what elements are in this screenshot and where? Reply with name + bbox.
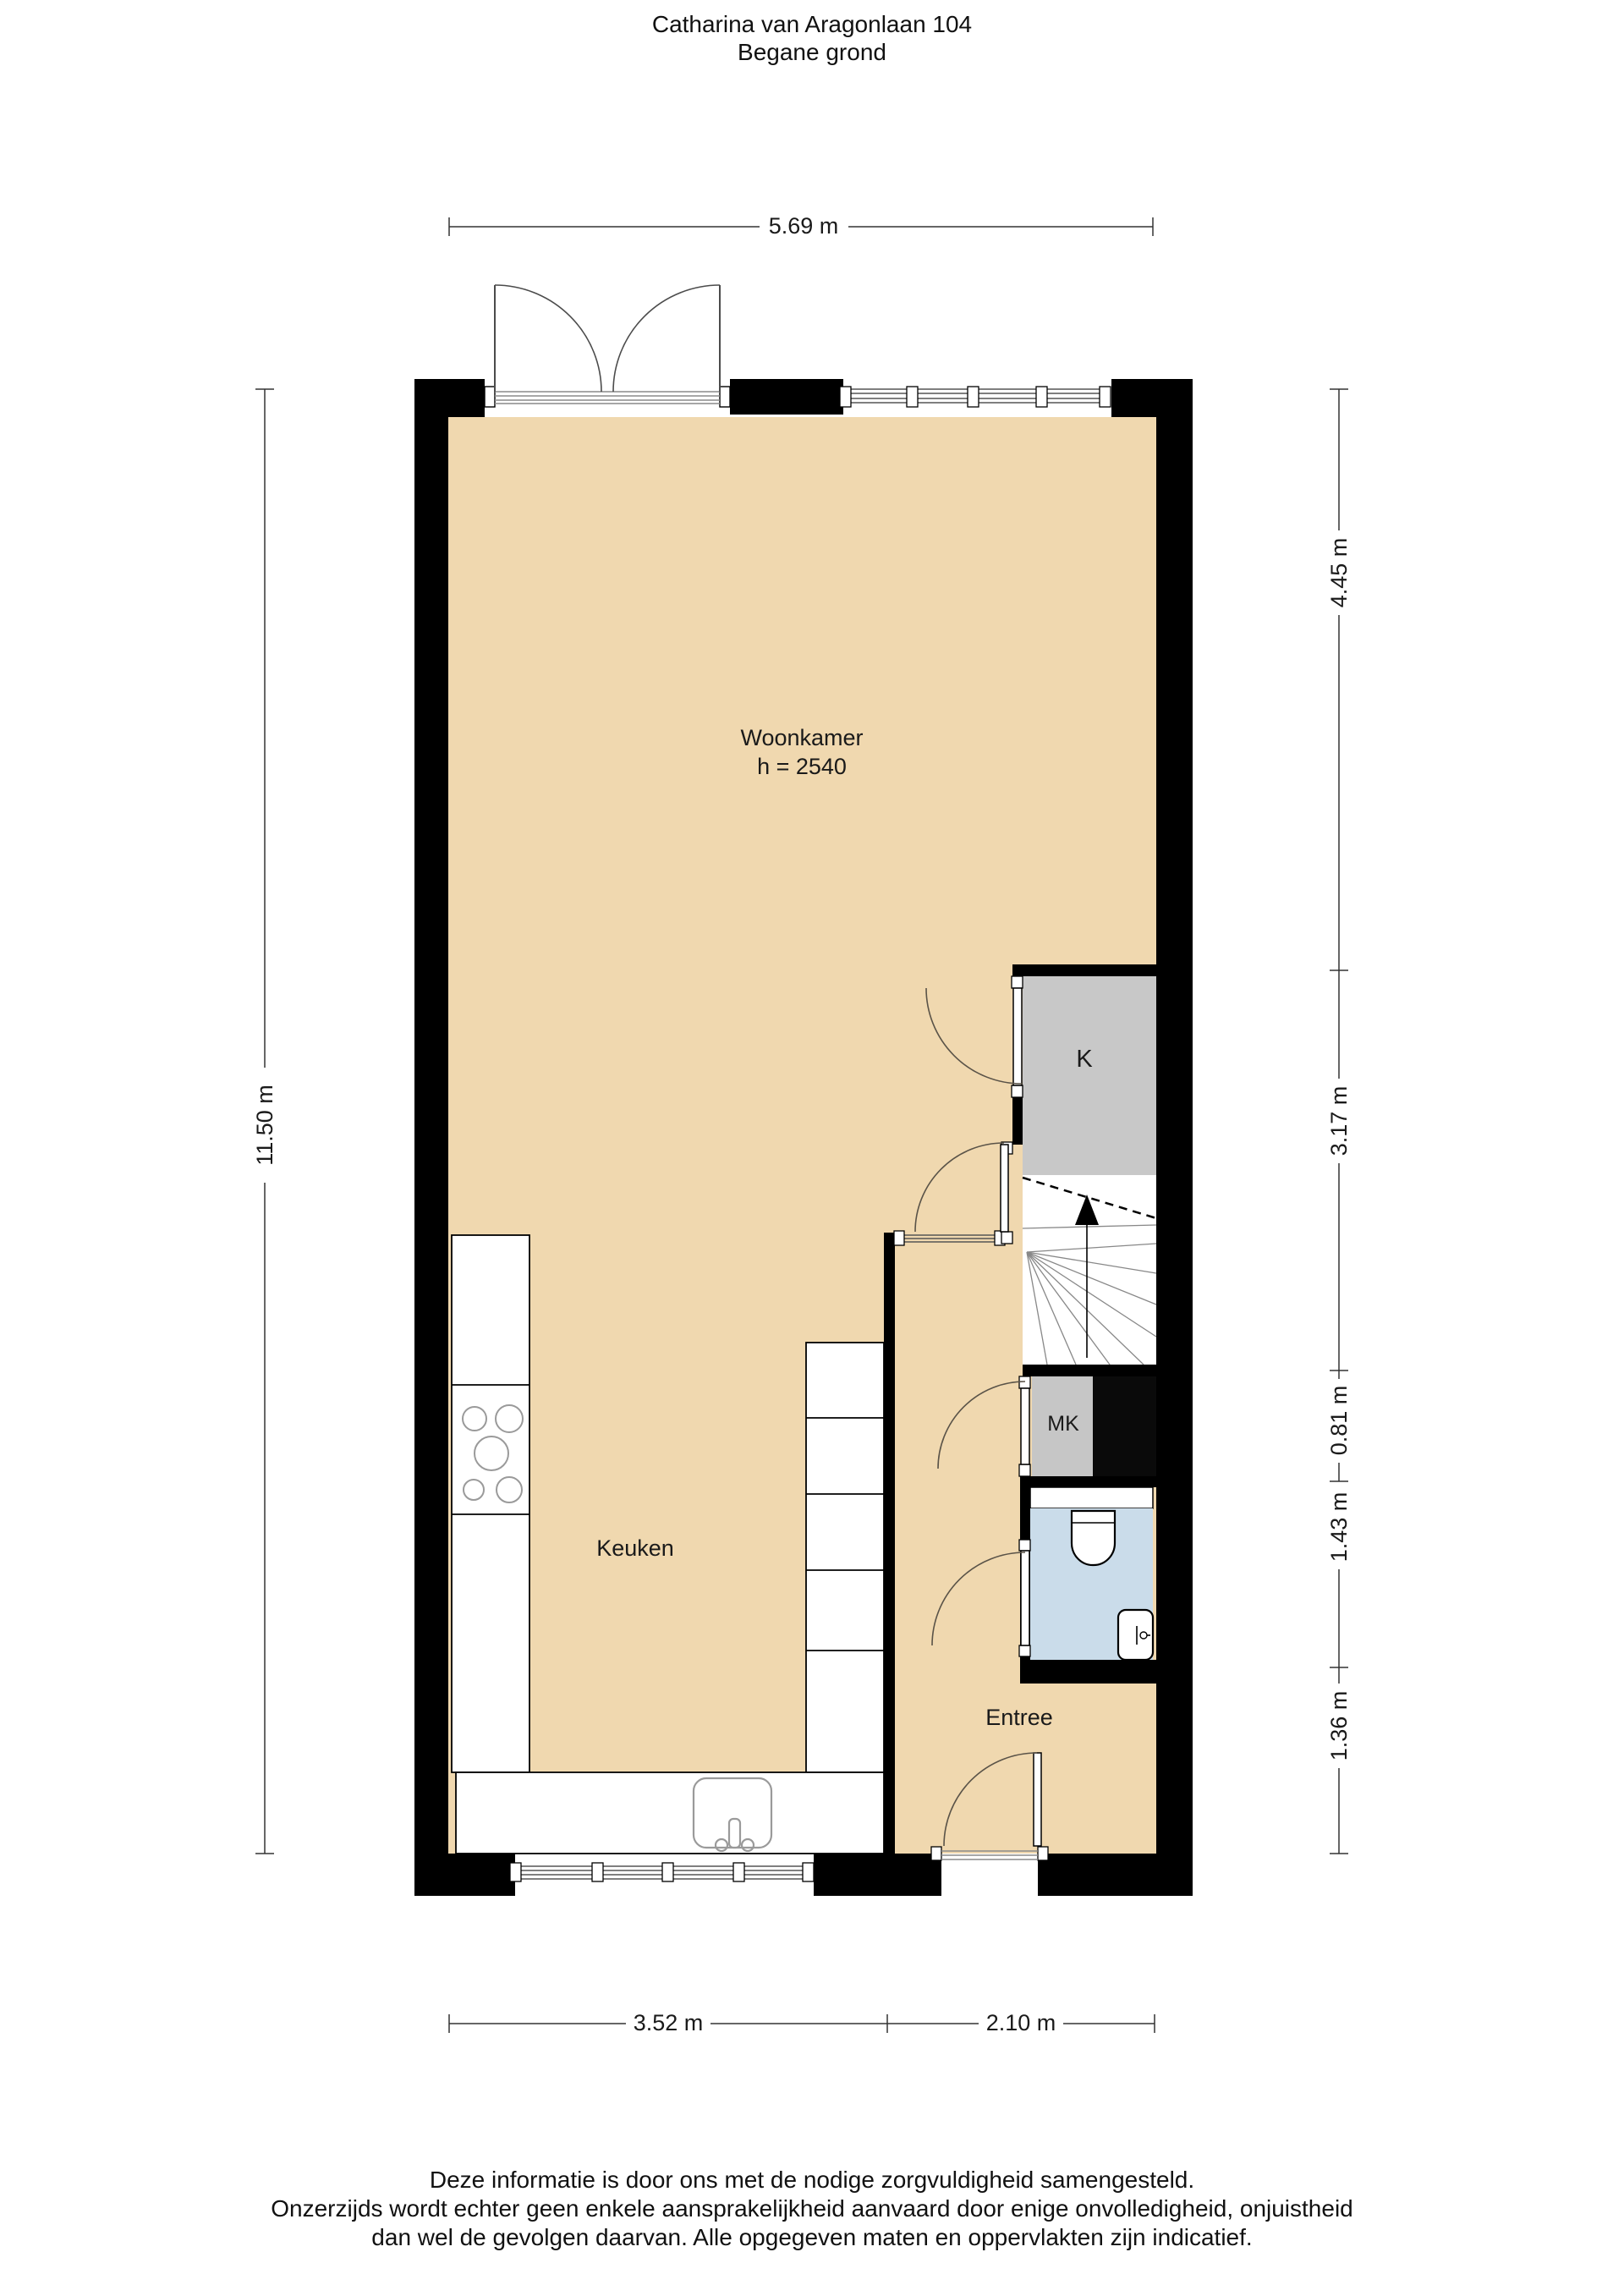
floorplan-drawing bbox=[0, 0, 1624, 2296]
stairs bbox=[1023, 1175, 1156, 1365]
dim-left-height: 11.50 m bbox=[251, 1074, 278, 1176]
room-label-meterkast: MK bbox=[1029, 1410, 1097, 1437]
dim-right-3: 0.81 m bbox=[1325, 1370, 1352, 1471]
french-doors-icon bbox=[485, 285, 730, 407]
room-label-keuken: Keuken bbox=[551, 1535, 720, 1562]
dim-right-1: 4.45 m bbox=[1325, 522, 1352, 623]
dim-bottom-2: 2.10 m bbox=[962, 2009, 1080, 2036]
dim-right-4: 1.43 m bbox=[1325, 1476, 1352, 1578]
room-label-entree: Entree bbox=[935, 1704, 1104, 1731]
dim-top-width: 5.69 m bbox=[744, 212, 863, 239]
disclaimer-line-3: dan wel de gevolgen daarvan. Alle opgege… bbox=[8, 2223, 1616, 2252]
disclaimer-line-1: Deze informatie is door ons met de nodig… bbox=[8, 2166, 1616, 2194]
dim-right-2: 3.17 m bbox=[1325, 1070, 1352, 1172]
toilet-room bbox=[1030, 1487, 1153, 1660]
toilet-icon bbox=[1072, 1511, 1115, 1565]
dim-bottom-1: 3.52 m bbox=[609, 2009, 727, 2036]
dim-right-5: 1.36 m bbox=[1325, 1675, 1352, 1777]
room-label-kast: K bbox=[1051, 1046, 1118, 1073]
top-window-icon bbox=[840, 387, 1111, 407]
bottom-window-icon bbox=[510, 1863, 814, 1881]
floorplan-page: Catharina van Aragonlaan 104 Begane gron… bbox=[0, 0, 1624, 2296]
disclaimer-line-2: Onzerzijds wordt echter geen enkele aans… bbox=[8, 2194, 1616, 2223]
washbasin-icon bbox=[1118, 1610, 1153, 1660]
room-label-woonkamer: Woonkamer bbox=[717, 724, 886, 751]
room-height-woonkamer: h = 2540 bbox=[717, 753, 886, 780]
